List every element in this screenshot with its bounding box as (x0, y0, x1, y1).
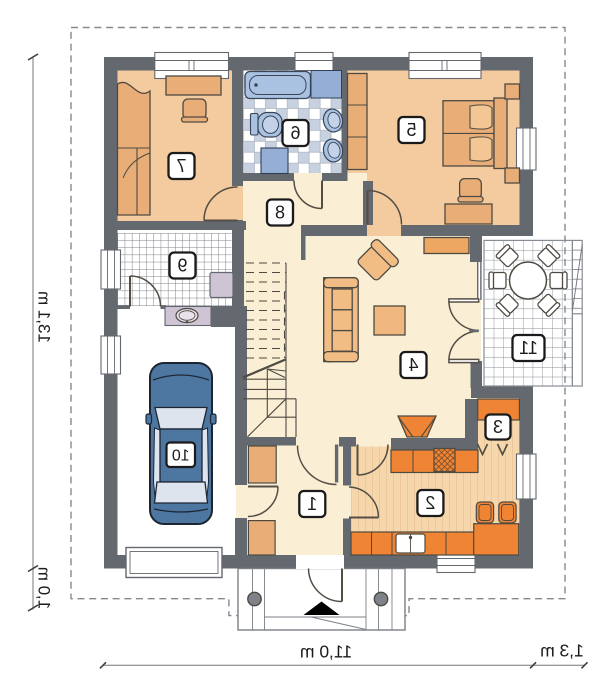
svg-text:11: 11 (519, 338, 538, 358)
svg-text:1,0 m: 1,0 m (35, 567, 54, 610)
svg-text:13,1 m: 13,1 m (35, 291, 54, 343)
svg-text:5: 5 (406, 120, 416, 140)
svg-text:9: 9 (177, 256, 187, 276)
svg-text:1: 1 (307, 494, 317, 514)
svg-text:11,0 m: 11,0 m (300, 642, 352, 662)
svg-text:6: 6 (290, 123, 300, 143)
svg-text:1,3 m: 1,3 m (540, 641, 584, 661)
svg-text:2: 2 (425, 493, 435, 513)
svg-text:7: 7 (176, 156, 186, 176)
svg-text:10: 10 (172, 447, 190, 464)
svg-text:4: 4 (408, 355, 418, 375)
svg-text:3: 3 (493, 417, 503, 437)
svg-text:8: 8 (275, 203, 285, 223)
